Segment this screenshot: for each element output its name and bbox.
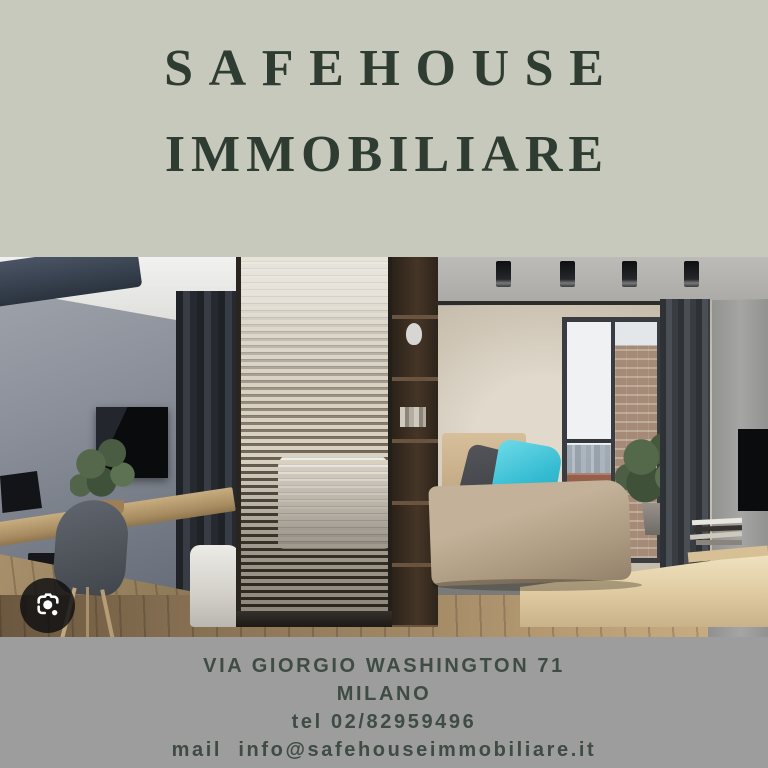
camera-lens-icon bbox=[34, 592, 62, 620]
ceiling-spotlight bbox=[684, 261, 699, 287]
wall-tv-right bbox=[738, 429, 768, 511]
desk-plant bbox=[70, 435, 140, 507]
real-estate-flyer: SAFEHOUSE IMMOBILIARE bbox=[0, 0, 768, 768]
contact-email: mail info@safehouseimmobiliare.it bbox=[0, 736, 768, 764]
partition-frame-left bbox=[236, 257, 241, 627]
ceiling-spotlight bbox=[622, 261, 637, 287]
brand-name-line1: SAFEHOUSE bbox=[16, 42, 768, 97]
bed-linen-edge bbox=[190, 545, 240, 627]
property-photo bbox=[0, 257, 768, 637]
daybed-shadow bbox=[432, 579, 642, 591]
concrete-ceiling bbox=[392, 257, 768, 307]
google-lens-button[interactable] bbox=[20, 578, 75, 633]
living-area bbox=[392, 257, 768, 637]
partition-shading bbox=[236, 257, 394, 627]
header-band: SAFEHOUSE IMMOBILIARE bbox=[0, 0, 768, 257]
contact-band: VIA GIORGIO WASHINGTON 71 MILANO tel 02/… bbox=[0, 637, 768, 768]
ceiling-spotlight bbox=[560, 261, 575, 287]
stacked-book bbox=[696, 540, 742, 545]
shelf-vase bbox=[406, 323, 422, 345]
shelf-books bbox=[400, 407, 426, 427]
wood-slat-partition bbox=[236, 257, 394, 627]
contact-address: VIA GIORGIO WASHINGTON 71 bbox=[0, 652, 768, 680]
brand-name-line2: IMMOBILIARE bbox=[6, 128, 768, 183]
laptop bbox=[0, 471, 42, 513]
partition-base-rail bbox=[236, 611, 394, 627]
ceiling-spotlight bbox=[496, 261, 511, 287]
contact-phone: tel 02/82959496 bbox=[0, 708, 768, 736]
contact-city: MILANO bbox=[0, 680, 768, 708]
chair-leg bbox=[86, 587, 89, 637]
daybed-seat bbox=[428, 480, 631, 587]
